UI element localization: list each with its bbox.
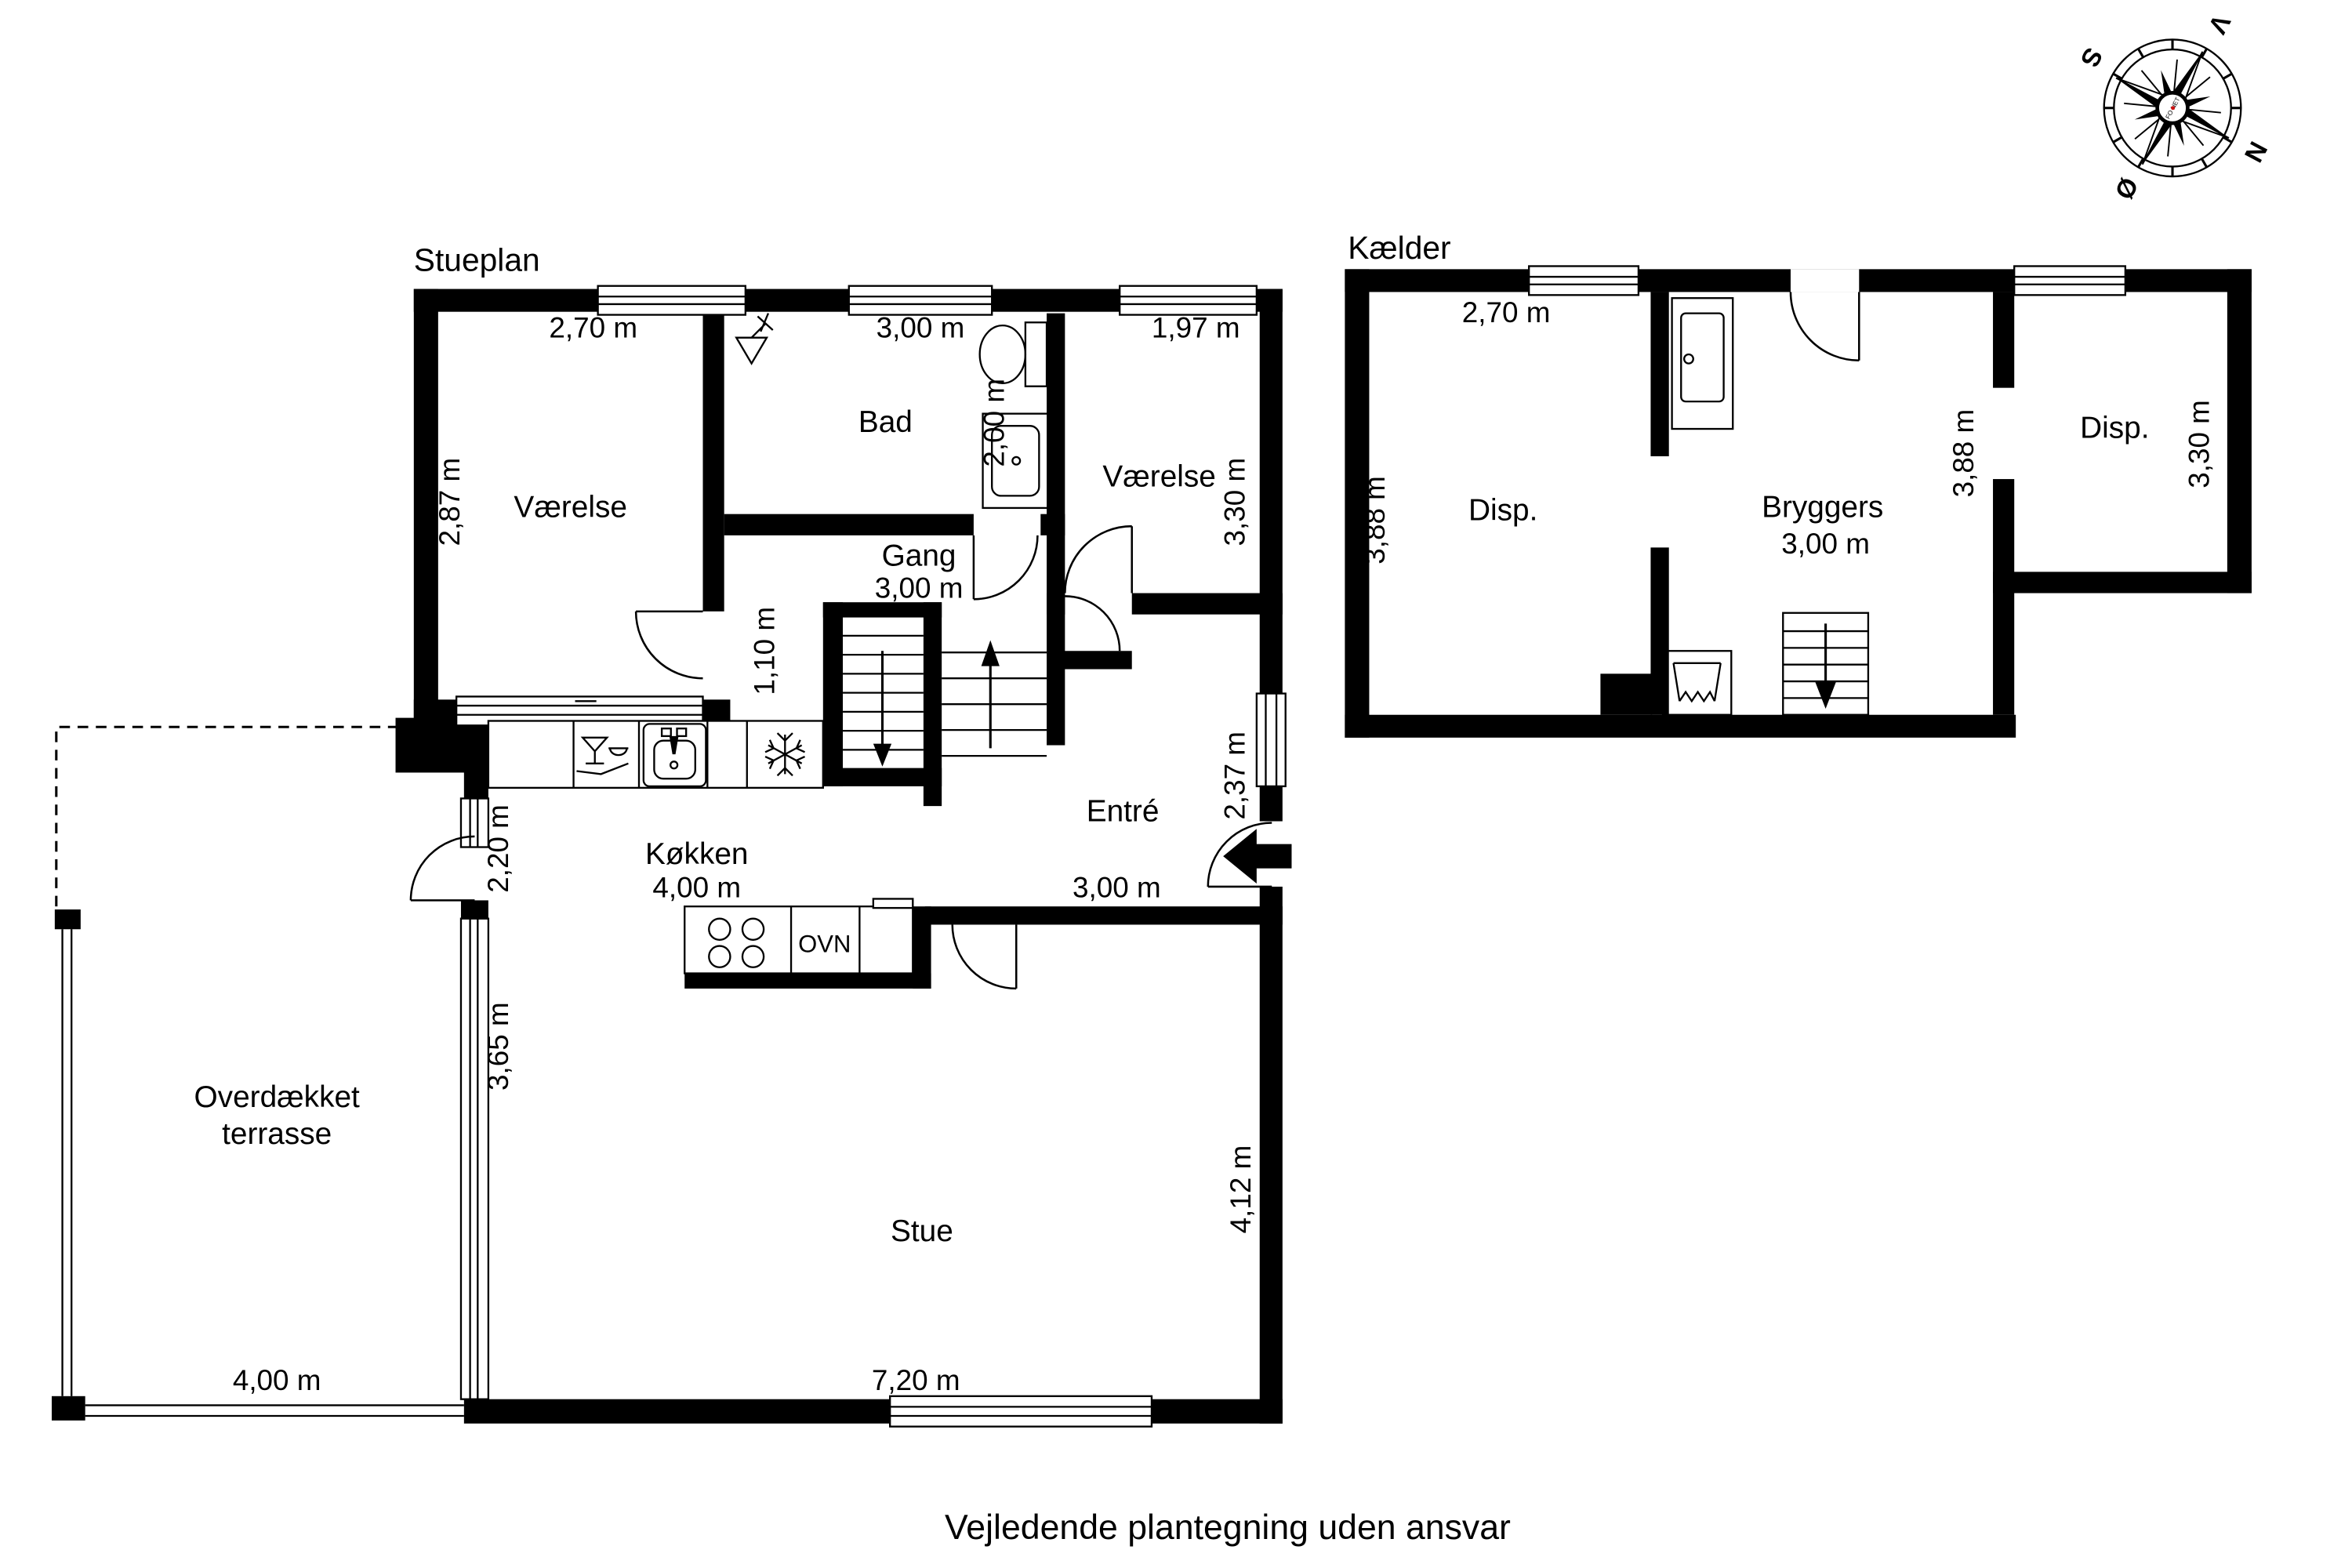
living-room-depth-right: 4,12 m (1225, 1145, 1257, 1234)
window-entry-east (1257, 694, 1286, 786)
window-top-bedroom-left (598, 286, 746, 315)
door-bathroom (974, 535, 1038, 599)
window-storage-left (1529, 266, 1639, 295)
window-living-room-south (890, 1396, 1152, 1427)
window-top-bedroom-right (1120, 286, 1257, 315)
bedroom-left-name: Værelse (514, 491, 626, 524)
compass-center-red-dot (2171, 106, 2175, 110)
compass-icon: FO NET S V N Ø (2075, 10, 2274, 205)
kitchen-name: Køkken (645, 837, 749, 871)
stueplan-windows (456, 286, 1286, 1427)
bedroom-right-depth: 3,30 m (1218, 458, 1250, 546)
kitchen-wall-section: 2,20 m (482, 804, 514, 893)
kitchen-island: OVN (684, 898, 913, 973)
kitchen-width: 4,00 m (652, 872, 741, 904)
stairs-up-icon (942, 641, 1047, 756)
utility-depth: 3,88 m (1947, 409, 1980, 498)
entry-name: Entré (1087, 795, 1160, 829)
terrace-name-line2: terrasse (222, 1117, 332, 1151)
door-bedroom-right (1065, 526, 1131, 593)
compass-north-label: N (2239, 137, 2274, 167)
bedroom-right-name: Værelse (1102, 460, 1215, 494)
storage-left-name: Disp. (1468, 493, 1537, 527)
floor-plan-canvas: Stueplan (0, 0, 2352, 1568)
entry-width: 3,00 m (1073, 872, 1161, 904)
terrace-name-line1: Overdækket (194, 1080, 360, 1114)
compass-south-label: S (2075, 43, 2109, 72)
living-room-depth-left: 3,65 m (482, 1002, 514, 1091)
basement-stairs-icon (1783, 613, 1868, 715)
door-hall-to-entry (1065, 596, 1120, 651)
living-room-width: 7,20 m (872, 1364, 960, 1396)
laundry-sink-icon (1663, 651, 1731, 714)
stueplan-walls (396, 289, 1283, 1424)
hallway-name: Gang (882, 539, 956, 573)
door-utility (1791, 269, 1859, 360)
stairs-down-icon (843, 636, 924, 767)
hallway-width: 3,00 m (875, 572, 964, 604)
kaelder-floor-plan: Kælder (1345, 230, 2252, 738)
window-living-room-west (461, 919, 488, 1399)
storage-left-depth: 3,88 m (1359, 476, 1391, 564)
storage-left-width: 2,70 m (1462, 296, 1551, 328)
window-top-bathroom (849, 286, 992, 315)
stueplan-title: Stueplan (414, 241, 540, 278)
entry-depth: 2,37 m (1218, 731, 1250, 820)
door-entry-to-living-room (953, 924, 1017, 988)
bathroom-name: Bad (858, 405, 913, 439)
bedroom-left-width: 2,70 m (549, 312, 637, 344)
kaelder-title: Kælder (1348, 230, 1450, 266)
window-storage-right (2014, 266, 2125, 295)
compass-west-label: V (2203, 10, 2237, 39)
toilet-icon (980, 322, 1047, 386)
utility-width: 3,00 m (1781, 528, 1870, 560)
hallway-passage-width: 1,10 m (749, 607, 781, 695)
storage-right-name: Disp. (2080, 412, 2149, 445)
stueplan-floor-plan: Stueplan (52, 241, 1292, 1426)
utility-name: Bryggers (1762, 491, 1883, 524)
oven-label: OVN (798, 930, 851, 957)
terrace-structure (52, 727, 464, 1421)
disclaimer-text: Vejledende plantegning uden ansvar (945, 1508, 1511, 1547)
bathroom-depth: 2,00 m (978, 379, 1011, 467)
shower-icon (736, 314, 773, 364)
terrace-width: 4,00 m (233, 1364, 321, 1396)
door-bedroom-left (636, 612, 702, 678)
bedroom-right-width: 1,97 m (1152, 312, 1240, 344)
compass-east-label: Ø (2109, 172, 2144, 204)
bedroom-left-depth: 2,87 m (434, 458, 466, 546)
living-room-name: Stue (891, 1214, 953, 1248)
kitchen-counter (488, 720, 823, 787)
bathroom-width: 3,00 m (877, 312, 965, 344)
shower-cabinet-icon (1672, 298, 1733, 429)
storage-right-depth: 3,30 m (2183, 400, 2216, 488)
